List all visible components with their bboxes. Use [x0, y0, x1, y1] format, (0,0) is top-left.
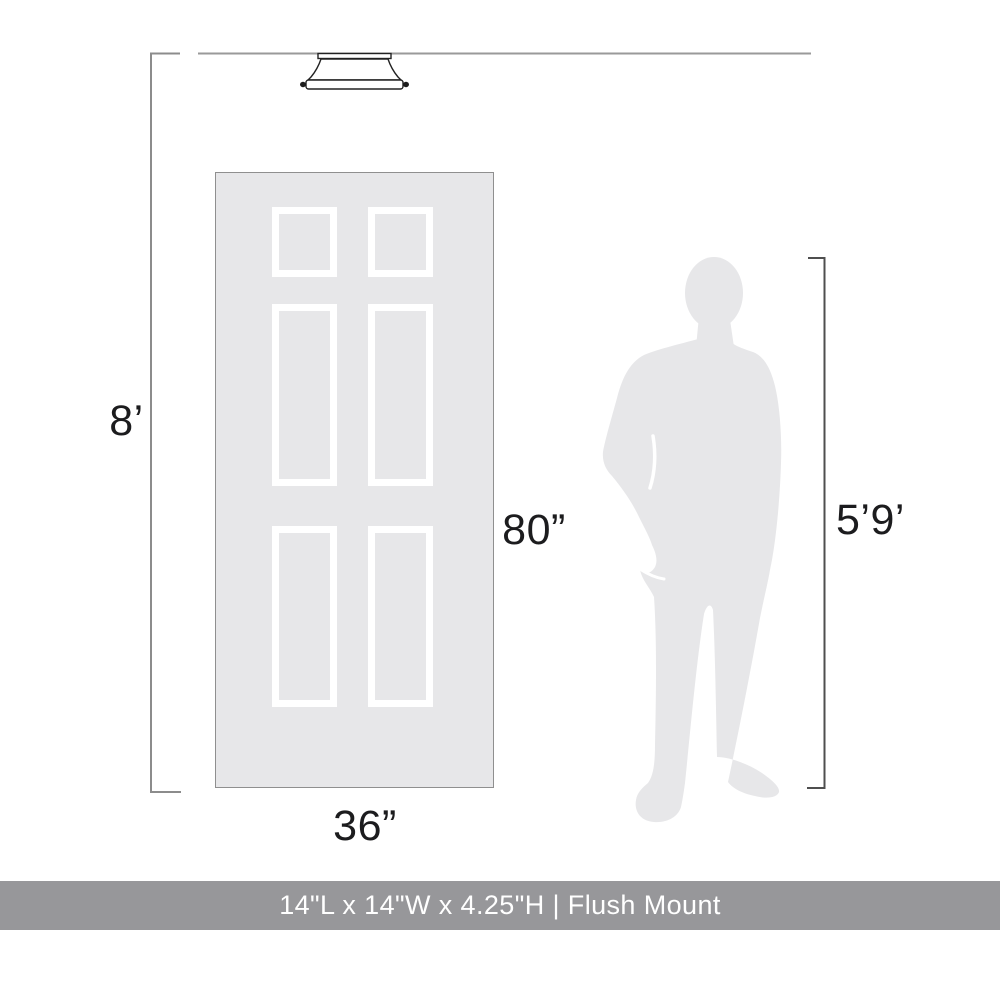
door-panel-top-right	[368, 207, 433, 277]
product-dimensions-bar: 14"L x 14"W x 4.25"H | Flush Mount	[0, 881, 1000, 930]
door-panel-top-left	[272, 207, 337, 277]
door-width-label: 36”	[325, 805, 405, 848]
door-illustration	[215, 172, 494, 788]
door-panel-bottom-right	[368, 526, 433, 707]
door-panel-middle-right	[368, 304, 433, 486]
door-height-label: 80”	[494, 509, 574, 552]
fixture-finial-right	[403, 82, 409, 87]
product-dimensions-text: 14"L x 14"W x 4.25"H | Flush Mount	[279, 890, 721, 920]
fixture-finial-left	[300, 82, 306, 87]
person-height-bracket	[807, 258, 825, 788]
fixture-dome	[308, 59, 401, 80]
ceiling-height-label: 8’	[94, 400, 159, 443]
fixture-canopy	[318, 54, 391, 59]
door-panel-bottom-left	[272, 526, 337, 707]
person-silhouette	[603, 257, 781, 822]
door-panel-middle-left	[272, 304, 337, 486]
flush-mount-fixture-icon	[300, 54, 409, 90]
person-height-label: 5’9’	[836, 499, 926, 542]
fixture-rim	[306, 80, 403, 89]
person-body	[603, 337, 781, 822]
size-comparison-diagram: 8’ 80” 36” 5’9’ 14"L x 14"W x 4.25"H | F…	[0, 0, 1000, 1000]
